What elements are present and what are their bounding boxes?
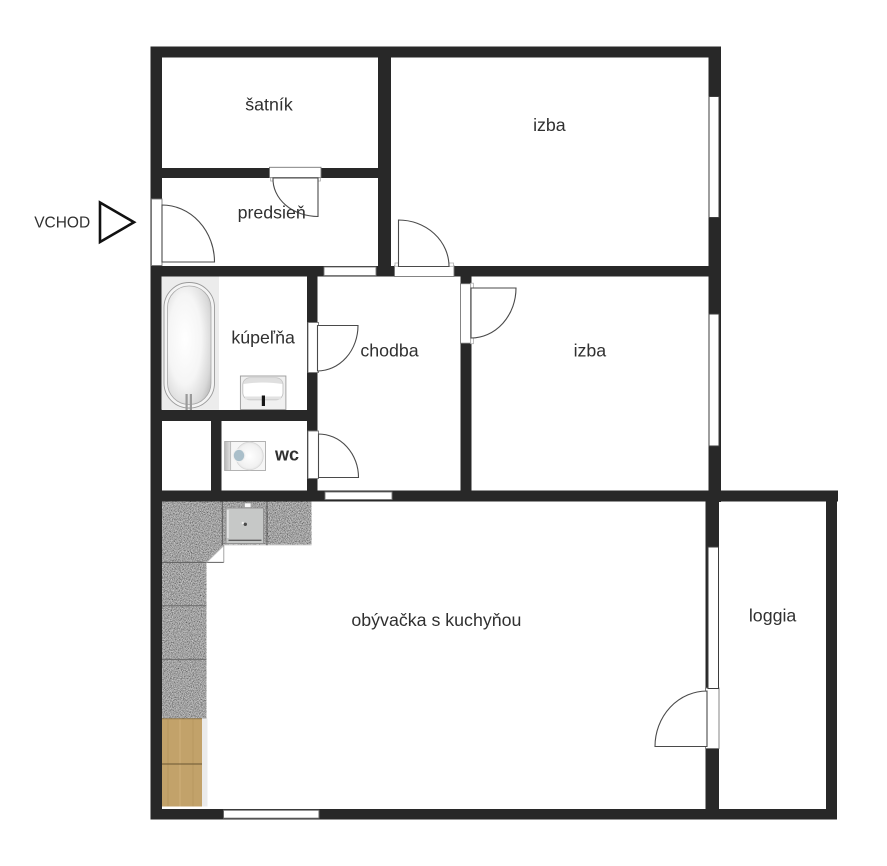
svg-text:izba: izba xyxy=(533,115,566,135)
svg-text:wc: wc xyxy=(274,445,299,465)
svg-text:izba: izba xyxy=(574,341,607,361)
svg-text:loggia: loggia xyxy=(749,606,797,626)
svg-text:chodba: chodba xyxy=(360,341,418,361)
svg-text:predsieň: predsieň xyxy=(238,203,306,223)
svg-text:obývačka s kuchyňou: obývačka s kuchyňou xyxy=(351,610,521,630)
svg-text:šatník: šatník xyxy=(245,95,293,115)
svg-text:VCHOD: VCHOD xyxy=(34,215,90,232)
svg-text:kúpeľňa: kúpeľňa xyxy=(231,328,295,348)
